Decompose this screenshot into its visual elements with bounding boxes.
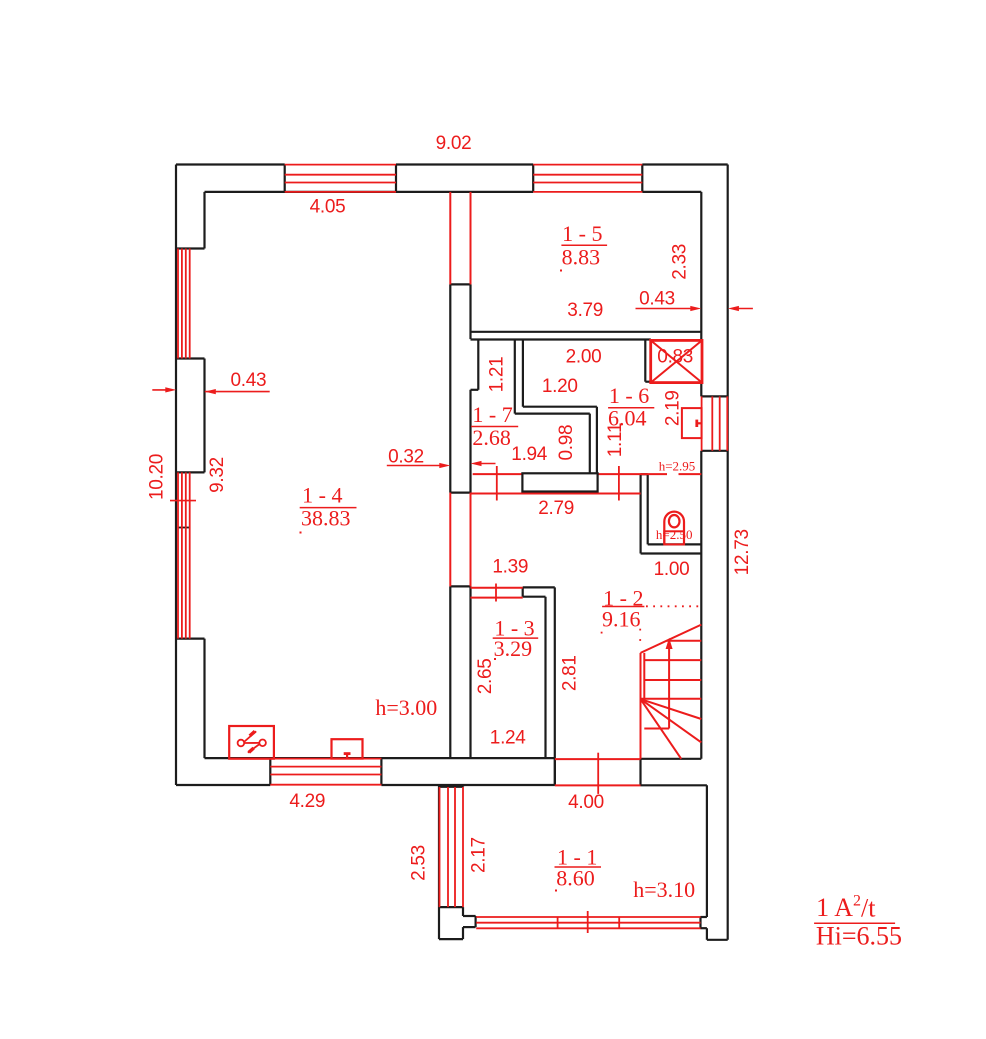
svg-text:9.16: 9.16: [602, 607, 641, 632]
svg-text:1 A2/t: 1 A2/t: [816, 892, 876, 922]
svg-text:2.17: 2.17: [469, 837, 490, 873]
svg-text:Hi=6.55: Hi=6.55: [816, 922, 902, 951]
svg-text:2.79: 2.79: [538, 498, 574, 519]
svg-text:3.79: 3.79: [567, 300, 603, 321]
svg-text:38.83: 38.83: [301, 505, 351, 530]
svg-text:12.73: 12.73: [732, 529, 753, 575]
svg-text:0.83: 0.83: [657, 347, 693, 368]
svg-text:1 - 5: 1 - 5: [562, 221, 602, 246]
svg-text:2.33: 2.33: [669, 244, 690, 280]
svg-text:3.29: 3.29: [494, 636, 533, 661]
svg-text:4.00: 4.00: [568, 792, 604, 813]
svg-text:4.05: 4.05: [310, 197, 346, 218]
svg-text:2.19: 2.19: [662, 390, 683, 426]
svg-text:6.04: 6.04: [608, 406, 647, 431]
svg-text:1.21: 1.21: [487, 357, 508, 393]
svg-text:4.29: 4.29: [289, 791, 325, 812]
svg-text:h=2.50: h=2.50: [656, 527, 693, 542]
svg-text:h=3.00: h=3.00: [375, 695, 437, 720]
svg-text:2.81: 2.81: [559, 655, 580, 691]
svg-text:9.32: 9.32: [207, 457, 228, 493]
svg-text:h=3.10: h=3.10: [633, 877, 695, 902]
svg-text:0.98: 0.98: [556, 425, 577, 461]
svg-text:8.83: 8.83: [562, 245, 601, 270]
svg-text:1.94: 1.94: [511, 444, 548, 465]
svg-text:8.60: 8.60: [556, 865, 595, 890]
svg-text:2.00: 2.00: [566, 347, 602, 368]
svg-text:h=2.95: h=2.95: [659, 458, 696, 473]
svg-text:2.53: 2.53: [408, 845, 429, 881]
svg-text:1.00: 1.00: [654, 559, 690, 580]
svg-text:0.32: 0.32: [388, 446, 424, 467]
svg-text:1.39: 1.39: [492, 557, 528, 578]
svg-text:9.02: 9.02: [436, 133, 472, 154]
svg-text:1 - 7: 1 - 7: [472, 402, 512, 427]
svg-text:1.24: 1.24: [490, 727, 527, 748]
svg-text:2.68: 2.68: [472, 425, 511, 450]
svg-text:0.43: 0.43: [231, 370, 267, 391]
svg-text:1 - 6: 1 - 6: [609, 383, 649, 408]
svg-text:1 - 4: 1 - 4: [302, 483, 342, 508]
svg-text:10.20: 10.20: [146, 454, 167, 500]
svg-text:1.20: 1.20: [542, 376, 578, 397]
svg-text:0.43: 0.43: [639, 289, 675, 310]
svg-text:2.65: 2.65: [475, 659, 496, 695]
